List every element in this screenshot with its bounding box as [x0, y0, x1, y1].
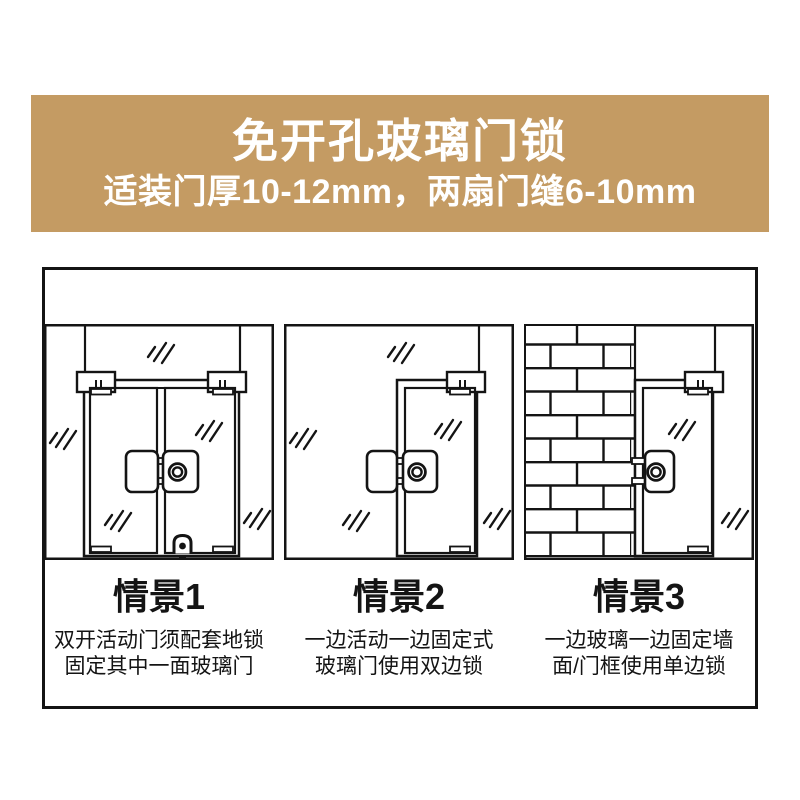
scenario-1-label: 情景1 — [44, 577, 274, 617]
scenario-3-desc-line2: 面/门框使用单边锁 — [524, 654, 754, 680]
scenario-2-desc-line1: 一边活动一边固定式 — [284, 628, 514, 654]
lock-knob-icon — [169, 464, 186, 481]
scenario-2-label: 情景2 — [284, 577, 514, 617]
brick-wall — [526, 326, 636, 557]
scenario-1-caption: 情景1 双开活动门须配套地锁 固定其中一面玻璃门 — [44, 577, 274, 680]
scenario-3-caption: 情景3 一边玻璃一边固定墙 面/门框使用单边锁 — [524, 577, 754, 680]
scenario-3-illustration — [525, 325, 753, 559]
scenario-3-label: 情景3 — [524, 577, 754, 617]
product-infographic: 免开孔玻璃门锁 适装门厚10-12mm，两扇门缝6-10mm — [0, 0, 800, 800]
scenario-1-illustration — [45, 325, 273, 560]
scenario-1-desc-line2: 固定其中一面玻璃门 — [44, 654, 274, 680]
lock-knob-icon — [648, 464, 665, 481]
scenario-1-desc-line1: 双开活动门须配套地锁 — [44, 628, 274, 654]
scenario-2-caption: 情景2 一边活动一边固定式 玻璃门使用双边锁 — [284, 577, 514, 680]
scenario-3-desc-line1: 一边玻璃一边固定墙 — [524, 628, 754, 654]
scenario-2-illustration — [285, 325, 513, 559]
scenario-2-desc-line2: 玻璃门使用双边锁 — [284, 654, 514, 680]
lock-knob-icon — [409, 464, 426, 481]
smart-lock-body — [126, 451, 198, 492]
smart-lock-body — [367, 451, 437, 492]
smart-lock-body — [645, 451, 674, 492]
scenario-illustrations — [0, 0, 800, 800]
